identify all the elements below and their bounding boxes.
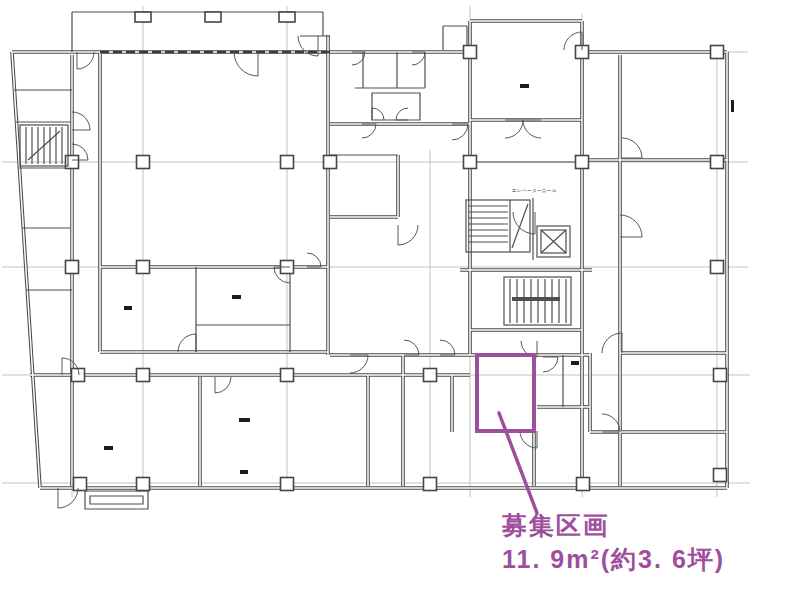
column: [464, 156, 477, 169]
column: [74, 478, 87, 491]
annotation-label: 募集区画: [501, 511, 610, 539]
column: [714, 369, 727, 382]
leader-line: [499, 413, 537, 513]
column: [711, 46, 724, 59]
column: [424, 369, 437, 382]
highlight-rect: [477, 355, 534, 431]
columns: [66, 12, 727, 491]
annotation-area: 11. 9m²(約3. 6坪): [502, 545, 725, 573]
stair-core-upper: [466, 200, 530, 252]
column: [281, 478, 294, 491]
column: [424, 478, 437, 491]
elevator-hall-label: エレベーターホール: [512, 188, 557, 193]
column: [137, 261, 150, 274]
column: [711, 261, 724, 274]
column: [279, 12, 295, 22]
column: [205, 12, 221, 22]
column: [135, 12, 151, 22]
column: [711, 156, 724, 169]
walls: [12, 12, 727, 509]
column: [281, 369, 294, 382]
column: [577, 478, 590, 491]
floor-plan: エレベーターホール 募集区画 11. 9m²(約3. 6坪): [0, 0, 800, 595]
column: [324, 156, 337, 169]
elevator-shaft: [537, 226, 570, 257]
column: [714, 469, 727, 482]
column: [137, 478, 150, 491]
stair-west: [20, 125, 68, 166]
column: [281, 156, 294, 169]
column: [66, 261, 79, 274]
column: [576, 156, 589, 169]
stair-core-lower: [504, 277, 571, 325]
column: [464, 46, 477, 59]
column: [137, 369, 150, 382]
column: [137, 156, 150, 169]
grid-lines: [2, 6, 750, 497]
floor-plan-page: エレベーターホール 募集区画 11. 9m²(約3. 6坪): [0, 0, 800, 595]
